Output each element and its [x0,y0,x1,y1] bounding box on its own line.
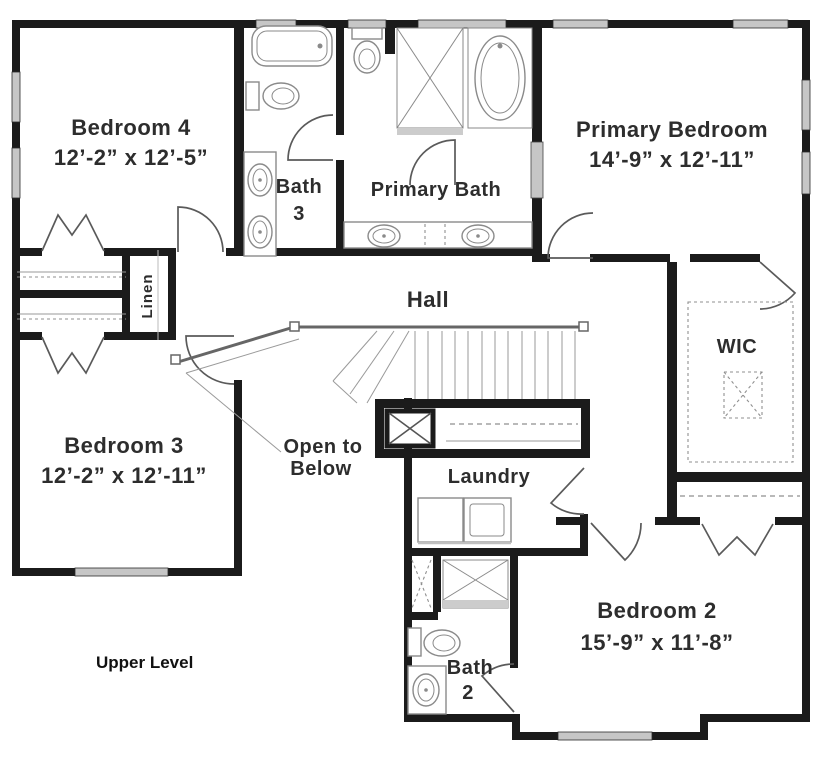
winder-tread [350,331,394,394]
window-pbed-right-1 [802,80,810,130]
door-bedroom3 [186,336,234,384]
soaking-tub-icon [475,36,525,120]
label-linen: Linen [139,274,156,319]
newel-post-corner [171,355,180,364]
tub-front-band [443,600,508,608]
label-bath3-line1: Bath [276,176,322,198]
wall-stairbox-right [581,399,590,458]
window-bed3-bottom [75,568,168,576]
winder-tread [333,331,377,381]
window-pbath-1 [348,20,386,28]
bifold-bedroom3-closet [42,337,104,373]
label-open-below-line2: Below [290,458,351,480]
wall-bath2-right [510,556,518,668]
wall-top [12,20,810,28]
label-primary-bedroom-dims: 14’-9” x 12’-11” [589,147,755,172]
sink-drain [424,688,428,692]
door-bedroom4 [178,207,223,252]
toilet-tank-icon [408,628,421,656]
door-bath3 [288,115,333,160]
wall-primarybed-south-1 [590,254,670,262]
wall-toilet-stub [385,28,395,54]
wall-primarybath-bedroom-lower [532,198,542,262]
label-bedroom3-name: Bedroom 3 [64,433,183,458]
toilet-bowl-icon [354,41,380,73]
sink-drain [382,234,386,238]
window-pbath-2 [418,20,506,28]
washer-icon [418,498,463,542]
label-bath2-line1: Bath [447,657,493,679]
door-wic [760,262,795,309]
floor-plan-page: Bedroom 4 12’-2” x 12’-5” Bath 3 Primary… [0,0,832,768]
door-bedroom2 [591,523,641,560]
bifold-bedroom2-closet [702,524,773,555]
toilet-tank-icon [246,82,259,110]
winder-edge [333,381,357,403]
stair-treads [333,331,575,403]
wall-bath2-bottom [404,714,520,722]
wic-shelf-outline [688,302,793,462]
wall-laundry-bottom [404,548,588,556]
wall-bedroom3-right [234,380,242,576]
sink-drain [476,234,480,238]
fixtures-primary-bath [344,28,532,248]
level-title: Upper Level [96,653,193,672]
wall-bath3-primarybath-upper [336,28,344,135]
label-bedroom2-name: Bedroom 2 [597,598,716,623]
wall-hall-north-2 [104,248,176,256]
window-pbed-top-2 [733,20,788,28]
stair-railing-diagonal [178,327,294,362]
shower-entry-band [397,128,463,135]
label-laundry: Laundry [448,466,531,488]
wall-primarybed-south-2 [690,254,760,262]
window-bed4-left-1 [12,72,20,122]
wall-stairbox-top [375,399,590,408]
window-bed4-left-2 [12,148,20,198]
window-pbed-top-1 [553,20,608,28]
wall-linen-right [168,248,176,340]
toilet-tank-icon [352,28,382,39]
wall-closet-bottom-2 [104,332,176,340]
label-bedroom2-dims: 15’-9” x 11’-8” [580,630,733,655]
floor-plan-svg: Bedroom 4 12’-2” x 12’-5” Bath 3 Primary… [0,0,832,768]
wall-bedroom4-bath3 [234,28,244,248]
fixtures-bath3 [244,26,332,256]
tub-faucet [498,44,503,49]
wall-hall-north-1 [12,248,42,256]
window-pbed-right-2 [802,152,810,194]
wall-stairbox-bottom [375,449,590,458]
bathtub-drain [318,44,323,49]
opening-primarybath-bedroom [531,142,543,198]
open-below-edge-line [186,373,281,452]
newel-post-right [579,322,588,331]
wall-bed2closet-2 [775,517,802,525]
label-wic: WIC [717,336,757,358]
wall-bath3-primarybath-lower [336,160,344,248]
winder-tread [367,331,409,403]
label-bedroom4-name: Bedroom 4 [71,115,191,140]
wall-primarybath-bedroom-upper [532,20,542,142]
bifold-bedroom4-closet [42,215,104,251]
window-bed2-bay [558,732,652,740]
sink-drain [258,230,262,234]
wall-stairbox-left [375,399,384,458]
wall-bath2-closet-divider [433,556,441,612]
sink-drain [258,178,262,182]
label-hall: Hall [407,287,449,312]
wall-bedroom2-bottom-right [700,714,810,722]
wall-below-wic [667,472,802,482]
newel-post-left [290,322,299,331]
door-primary-bedroom [548,213,593,258]
fixtures-laundry [418,498,511,543]
wall-bath2-closet-bottom [408,612,438,620]
wall-closet-divider [12,290,130,298]
label-primary-bedroom-name: Primary Bedroom [576,117,768,142]
label-open-below-line1: Open to [283,436,362,458]
wall-closet-bottom-1 [12,332,42,340]
label-bedroom4-dims: 12’-2” x 12’-5” [54,145,208,170]
label-bath2-line2: 2 [462,682,474,704]
fixtures-bath2 [408,560,508,714]
label-bath3-line2: 3 [293,203,305,225]
label-bedroom3-dims: 12’-2” x 12’-11” [41,463,207,488]
wall-bed2closet-1 [655,517,700,525]
door-laundry [551,468,584,514]
label-primary-bath: Primary Bath [371,179,502,201]
